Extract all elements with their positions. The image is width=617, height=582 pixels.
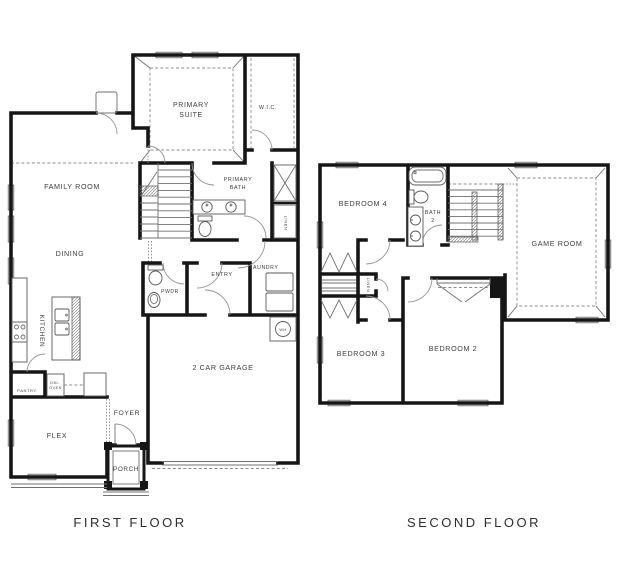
toilet-icon bbox=[149, 271, 162, 285]
room-label-family-room: FAMILY ROOM bbox=[44, 182, 100, 191]
sink-icon bbox=[202, 202, 212, 212]
garage-door bbox=[162, 462, 278, 466]
vanity-counter bbox=[193, 200, 245, 214]
toilet-tank bbox=[409, 190, 414, 204]
stairs-second-floor bbox=[448, 184, 503, 242]
refrigerator-icon bbox=[84, 373, 106, 396]
second-floor-caption: SECOND FLOOR bbox=[407, 515, 541, 530]
room-label-primary-bath-2: BATH bbox=[230, 185, 246, 191]
first-floor-caption: FIRST FLOOR bbox=[73, 515, 186, 530]
first-floor-labels: FAMILY ROOM DINING KITCHEN PANTRY DBL. O… bbox=[17, 102, 288, 473]
room-label-bedroom2: BEDROOM 2 bbox=[429, 344, 478, 353]
room-label-foyer: FOYER bbox=[114, 410, 140, 417]
stair-rail-hatch bbox=[140, 186, 158, 196]
closet-bifold bbox=[321, 300, 357, 318]
closet-bifold bbox=[321, 253, 357, 272]
floor-plan-svg: FAMILY ROOM DINING KITCHEN PANTRY DBL. O… bbox=[0, 0, 617, 582]
room-label-laundry: LAUNDRY bbox=[250, 265, 279, 271]
closet-wall-block bbox=[490, 278, 502, 298]
room-label-garage: 2 CAR GARAGE bbox=[192, 363, 253, 372]
room-label-dining: DINING bbox=[56, 249, 85, 258]
island-counter-hatch bbox=[72, 297, 80, 360]
tray-ceiling-dashed bbox=[150, 68, 233, 150]
room-label-porch: PORCH bbox=[113, 466, 139, 473]
kitchen-counter bbox=[12, 278, 27, 362]
room-label-dbl-oven-1: DBL. bbox=[50, 381, 60, 385]
closet-shelves bbox=[322, 280, 356, 291]
room-label-game-room: GAME ROOM bbox=[532, 239, 583, 248]
dryer-icon bbox=[266, 293, 293, 311]
room-label-flex: FLEX bbox=[47, 431, 67, 440]
powder-fixtures bbox=[148, 265, 163, 308]
room-label-bath2-1: BATH bbox=[425, 210, 441, 216]
room-label-kitchen: KITCHEN bbox=[38, 315, 45, 348]
room-label-bedroom3: BEDROOM 3 bbox=[337, 349, 386, 358]
stair-rail-hatch bbox=[498, 184, 503, 240]
room-label-linen-second: LINEN bbox=[366, 278, 371, 293]
room-label-primary-suite-1: PRIMARY bbox=[173, 102, 209, 109]
room-label-linen-first: LINEN bbox=[284, 216, 289, 231]
sink-icon bbox=[55, 309, 69, 321]
sink-icon bbox=[55, 323, 69, 335]
room-label-bath2-2: 2 bbox=[431, 218, 435, 224]
range-icon bbox=[12, 322, 27, 342]
sink-icon bbox=[226, 202, 236, 212]
bath2-fixtures bbox=[408, 167, 446, 246]
primary-bath-fixtures bbox=[193, 165, 296, 238]
room-label-pantry: PANTRY bbox=[17, 388, 36, 393]
toilet-tank bbox=[148, 265, 163, 270]
room-label-wic: W.I.C. bbox=[259, 105, 277, 111]
stairs-first-floor bbox=[140, 163, 192, 238]
closet-bifold bbox=[437, 284, 490, 302]
room-label-water-heater: WH bbox=[279, 328, 287, 332]
exterior-door-leaf bbox=[96, 92, 117, 113]
laundry-fixtures bbox=[266, 273, 293, 311]
second-floor-plan: BEDROOM 4 BATH 2 GAME ROOM LINEN BEDROOM… bbox=[317, 162, 611, 406]
room-label-dbl-oven-2: OVEN bbox=[49, 386, 62, 390]
room-label-entry: ENTRY bbox=[211, 272, 232, 278]
toilet-icon bbox=[414, 191, 428, 203]
first-floor-plan: FAMILY ROOM DINING KITCHEN PANTRY DBL. O… bbox=[8, 52, 298, 495]
captions: FIRST FLOOR SECOND FLOOR bbox=[73, 515, 541, 530]
toilet-tank bbox=[198, 216, 212, 221]
kitchen-fixtures bbox=[12, 278, 106, 396]
stair-rail-hatch bbox=[472, 192, 477, 240]
stair-rail-hatch bbox=[448, 237, 478, 242]
room-label-bedroom4: BEDROOM 4 bbox=[339, 199, 388, 208]
double-oven-cabinet bbox=[47, 374, 64, 396]
second-floor-closets bbox=[321, 253, 490, 318]
floor-plan-page: FAMILY ROOM DINING KITCHEN PANTRY DBL. O… bbox=[0, 0, 617, 582]
washer-icon bbox=[266, 273, 293, 291]
room-label-primary-bath-1: PRIMARY bbox=[224, 177, 253, 183]
toilet-icon bbox=[199, 222, 211, 237]
room-label-primary-suite-2: SUITE bbox=[179, 112, 203, 119]
room-label-powder: PWDR bbox=[161, 289, 179, 295]
